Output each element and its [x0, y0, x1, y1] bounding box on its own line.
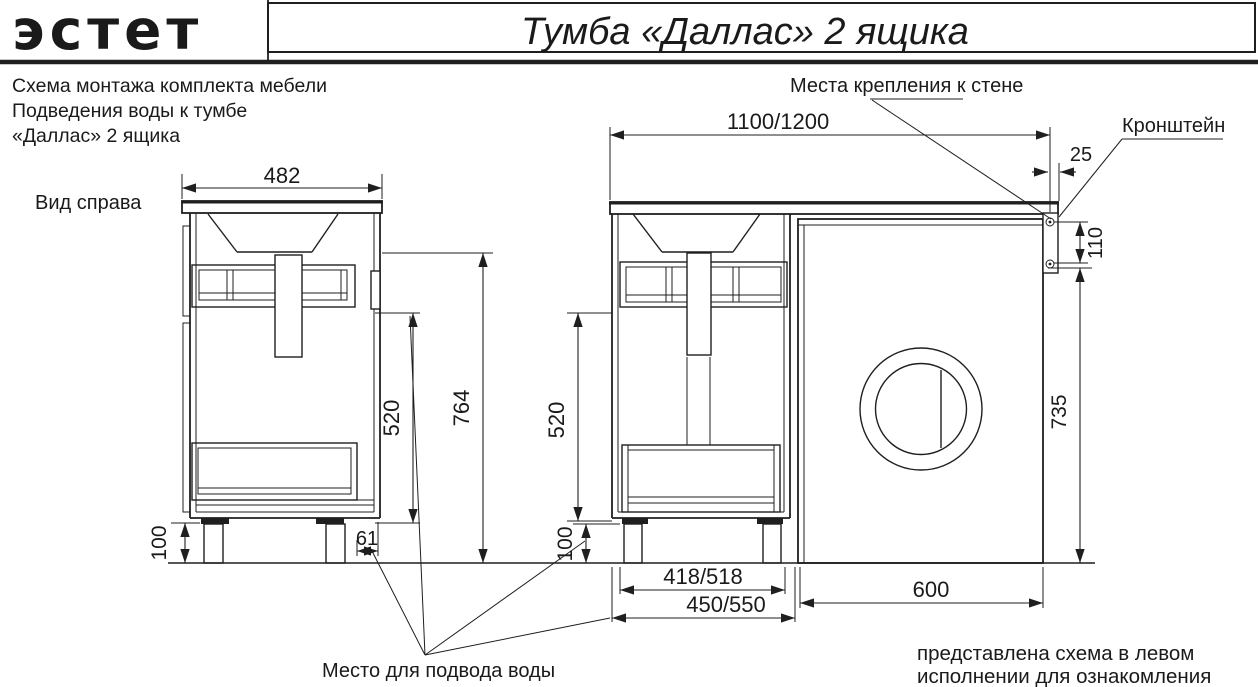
side-drawer-front-top — [183, 226, 190, 316]
dim-front-overhang: 25 — [1032, 144, 1092, 201]
wall-mount-callout: Места крепления к стене — [790, 75, 1051, 219]
front-drain-pipe — [687, 357, 710, 445]
dim-side-back-gap: 61 — [356, 522, 378, 556]
description-line-2: Подведения воды к тумбе — [12, 100, 247, 122]
dim-washer-width: 600 — [800, 567, 1043, 608]
svg-text:450/550: 450/550 — [686, 592, 766, 617]
svg-text:25: 25 — [1070, 144, 1092, 166]
side-legs — [201, 518, 345, 563]
front-sink-bowl — [633, 214, 760, 252]
dim-washer-height: 735 — [1048, 268, 1092, 563]
svg-text:520: 520 — [379, 400, 404, 437]
water-supply-callout: Место для подвода воды — [322, 316, 610, 682]
svg-text:61: 61 — [356, 528, 378, 550]
svg-text:418/518: 418/518 — [663, 564, 743, 589]
wall-mount-label: Места крепления к стене — [790, 75, 1023, 97]
dim-front-leg-height: 100 — [554, 524, 620, 563]
dim-front-water-height: 520 — [544, 313, 612, 521]
water-supply-label: Место для подвода воды — [322, 660, 555, 682]
disclaimer-line-1: представлена схема в левом — [917, 642, 1194, 665]
svg-text:100: 100 — [554, 526, 577, 561]
washing-machine — [798, 219, 1043, 563]
front-countertop — [609, 202, 1059, 214]
side-countertop — [181, 201, 383, 213]
svg-text:520: 520 — [544, 402, 569, 439]
side-wall-rail — [371, 271, 380, 309]
brand-logo: эстет — [12, 0, 203, 62]
view-label: Вид справа — [35, 192, 142, 214]
page-title: Тумба «Даллас» 2 ящика — [521, 11, 969, 53]
bracket-label: Кронштейн — [1122, 115, 1225, 137]
side-sink-bowl — [208, 214, 338, 252]
dim-side-water-height: 520 — [375, 313, 420, 523]
water-supply-leaders — [372, 316, 610, 655]
dim-side-leg-height: 100 — [148, 523, 200, 563]
description-line-3: «Даллас» 2 ящика — [12, 125, 180, 147]
side-siphon — [275, 255, 302, 357]
installation-diagram: эстет Тумба «Даллас» 2 ящика Схема монта… — [0, 0, 1258, 687]
dim-side-width: 482 — [182, 163, 382, 199]
dim-front-total-width: 1100/1200 — [610, 109, 1050, 212]
dim-front-inner-width: 418/518 — [620, 564, 785, 594]
washer-door-inner — [876, 364, 967, 455]
side-drawer-front-bottom — [183, 323, 190, 512]
front-legs — [622, 518, 783, 563]
header: эстет Тумба «Даллас» 2 ящика — [0, 0, 1258, 62]
svg-text:100: 100 — [148, 525, 171, 560]
side-view: 482 520 764 100 61 — [148, 163, 493, 563]
dim-bracket-holes: 110 — [1054, 222, 1107, 263]
svg-text:764: 764 — [449, 390, 474, 427]
disclaimer-line-2: исполнении для ознакомления — [917, 665, 1211, 687]
svg-text:600: 600 — [913, 577, 950, 602]
bracket-callout: Кронштейн — [1059, 115, 1225, 217]
disclaimer-note: представлена схема в левом исполнении дл… — [917, 642, 1211, 687]
description-block: Схема монтажа комплекта мебели Подведени… — [12, 75, 327, 214]
svg-text:735: 735 — [1048, 394, 1071, 429]
side-bottom-drawer — [192, 443, 357, 500]
description-line-1: Схема монтажа комплекта мебели — [12, 75, 327, 97]
svg-text:482: 482 — [264, 163, 301, 188]
svg-text:1100/1200: 1100/1200 — [727, 109, 829, 134]
front-siphon — [687, 253, 711, 355]
svg-text:110: 110 — [1085, 227, 1107, 259]
washer-door-outer — [860, 348, 982, 470]
front-bottom-drawer — [622, 445, 780, 512]
front-view: 1100/1200 25 110 735 600 — [544, 109, 1107, 622]
